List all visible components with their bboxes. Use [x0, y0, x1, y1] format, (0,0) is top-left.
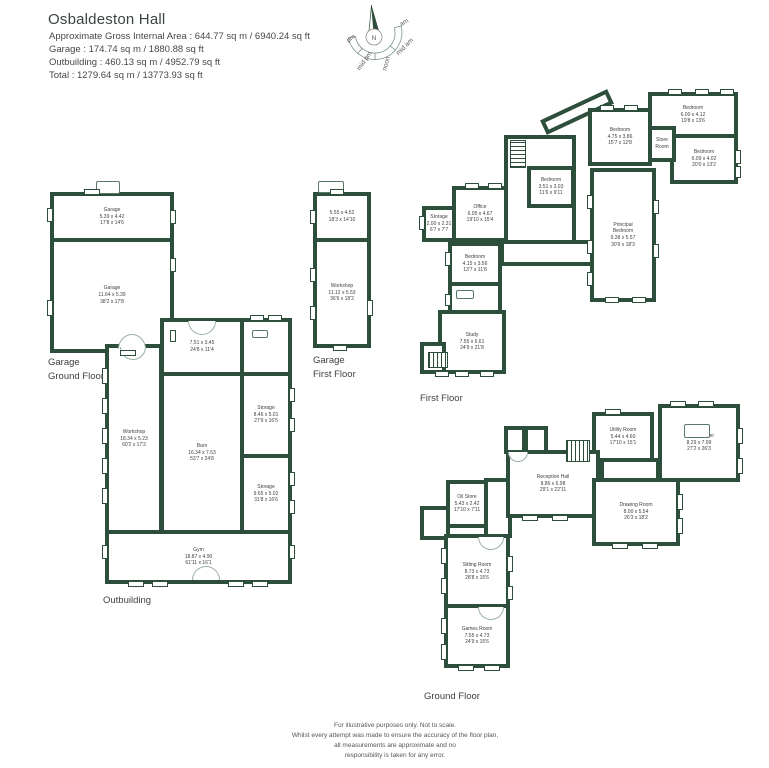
room-dimensions: 27'2 x 26'3	[687, 446, 711, 453]
room-bedroom: Bedroom3.51 x 3.0311'6 x 9'11	[527, 166, 575, 208]
window-mark	[102, 458, 108, 474]
room-dimensions: 4.15 x 3.56	[463, 261, 488, 268]
room-storage: Storage8.46 x 5.0127'9 x 16'5	[240, 372, 292, 458]
room-name: Utility Room	[610, 427, 637, 434]
room-garage: Garage11.64 x 5.3938'2 x 17'8	[50, 238, 174, 353]
window-mark	[552, 515, 568, 521]
window-mark	[668, 89, 682, 95]
window-mark	[441, 618, 447, 634]
room-dimensions: 6'7 x 7'7	[430, 227, 448, 234]
floor-label: Outbuilding	[103, 594, 151, 608]
room-dimensions: 11.64 x 5.39	[98, 292, 125, 299]
room-dimensions: 4.75 x 3.86	[608, 134, 633, 141]
room-name: Bedroom	[541, 177, 561, 184]
room-dimensions: 18.34 x 5.23	[120, 436, 148, 443]
window-mark	[310, 210, 316, 224]
window-mark	[677, 518, 683, 534]
room-dimensions: 36'6 x 18'2	[330, 296, 354, 303]
window-mark	[624, 105, 638, 111]
window-mark	[480, 371, 494, 377]
window-mark	[84, 189, 100, 195]
window-mark	[605, 409, 621, 415]
room-bedroom: Bedroom4.75 x 3.8615'7 x 12'8	[588, 108, 652, 166]
room-dimensions: 27'9 x 16'5	[254, 418, 278, 425]
window-mark	[605, 297, 619, 303]
disclaimer-line: For illustrative purposes only. Not to s…	[185, 721, 605, 731]
room-dimensions: 11.12 x 5.53	[328, 290, 355, 297]
compass-rose: N pmmid pmnoonmid amam	[330, 0, 440, 92]
window-mark	[441, 578, 447, 594]
window-mark	[653, 200, 659, 214]
window-mark	[737, 428, 743, 444]
room-office: Office6.05 x 4.6719'10 x 15'4	[452, 186, 508, 242]
room-name: Study	[466, 332, 479, 339]
area-total-line: Approximate Gross Internal Area : 644.77…	[49, 31, 310, 42]
window-mark	[735, 166, 741, 178]
window-mark	[737, 458, 743, 474]
window-mark	[455, 371, 469, 377]
room-dimensions: 6.05 x 4.67	[468, 211, 493, 218]
room-dimensions: 20'0 x 13'2	[692, 162, 716, 169]
room-name: Storage	[430, 214, 448, 221]
room-dimensions: 26'3 x 18'2	[624, 515, 648, 522]
room-name: Store	[656, 137, 668, 144]
room-dimensions: 18.87 x 4.90	[185, 554, 213, 561]
window-mark	[289, 545, 295, 559]
room-name: Gym	[193, 547, 204, 554]
room-dimensions: 8.86 x 6.98	[541, 481, 566, 488]
floor-label: Garage First Floor	[313, 354, 356, 382]
window-mark	[333, 345, 347, 351]
room-dimensions: 31'8 x 16'6	[254, 497, 278, 504]
room-dimensions: 19'8 x 13'6	[681, 118, 705, 125]
room-dimensions: 60'2 x 17'2	[122, 442, 146, 449]
window-mark	[441, 644, 447, 660]
stairs-icon	[428, 352, 448, 368]
room-storage: Storage9.65 x 5.0231'8 x 16'6	[240, 454, 292, 534]
room-dimensions: 16.34 x 7.53	[188, 450, 216, 457]
disclaimer: For illustrative purposes only. Not to s…	[185, 721, 605, 761]
room-study: Study7.55 x 6.6124'9 x 21'8	[438, 310, 506, 374]
window-mark	[720, 89, 734, 95]
window-mark	[488, 183, 502, 189]
sink-icon	[252, 330, 268, 338]
window-mark	[587, 272, 593, 286]
floor-label: Garage Ground Floor	[48, 356, 104, 384]
room-dimensions: 9.38 x 5.57	[611, 235, 636, 242]
page-title: Osbaldeston Hall	[48, 11, 165, 28]
room-dimensions: 24'9 x 15'6	[465, 639, 489, 646]
room-dimensions: 30'9 x 18'3	[611, 242, 635, 249]
room-dimensions: 5.43 x 2.42	[455, 501, 480, 508]
room-name: Bedroom	[694, 149, 714, 156]
window-mark	[170, 210, 176, 224]
window-mark	[47, 208, 53, 222]
window-mark	[289, 388, 295, 402]
kitchen-island	[684, 424, 710, 438]
room-name: Barn	[197, 443, 208, 450]
room-dimensions: 9.65 x 5.02	[254, 491, 279, 498]
window-mark	[441, 548, 447, 564]
room-name: 5.55 x 4.52	[330, 210, 355, 217]
window-mark	[170, 330, 176, 342]
room-name: Reception Hall	[537, 474, 570, 481]
room-name: Drawing Room	[619, 502, 652, 509]
window-mark	[170, 258, 176, 272]
window-mark	[642, 543, 658, 549]
window-mark	[507, 556, 513, 572]
room-dimensions: 7.55 x 4.73	[465, 633, 490, 640]
window-mark	[445, 294, 451, 306]
window-mark	[289, 472, 295, 486]
disclaimer-line: all measurements are approximate and no	[185, 741, 605, 751]
room-dimensions: 8.00 x 5.54	[624, 509, 649, 516]
window-mark	[120, 350, 136, 356]
area-grand-total-line: Total : 1279.64 sq m / 13773.93 sq ft	[49, 70, 203, 81]
window-mark	[695, 89, 709, 95]
room-dimensions: 8.46 x 5.01	[254, 412, 279, 419]
window-mark	[653, 244, 659, 258]
compass-sun-label: am	[399, 17, 410, 28]
room-dimensions: 13'7 x 11'8	[463, 267, 487, 274]
area-outbuilding-line: Outbuilding : 460.13 sq m / 4952.79 sq f…	[49, 57, 220, 68]
room-name: Sitting Room	[463, 562, 492, 569]
room-name: Storage	[257, 484, 275, 491]
room-garage: Garage5.39 x 4.4217'8 x 14'6	[50, 192, 174, 242]
window-mark	[419, 216, 425, 230]
room-name: Office	[474, 204, 487, 211]
room-dimensions: 18'3 x 14'10	[329, 217, 356, 224]
window-mark	[128, 581, 144, 587]
window-mark	[102, 545, 108, 559]
room-dimensions: Bedroom	[613, 228, 633, 235]
room-kitchen-diner: Kitchen/Diner8.29 x 7.9927'2 x 26'3	[658, 404, 740, 482]
room-name: Storage	[257, 405, 275, 412]
window-mark	[102, 398, 108, 414]
room-dimensions: 17'10 x 7'11	[454, 507, 480, 514]
window-mark	[152, 581, 168, 587]
disclaimer-line: Whilst every attempt was made to ensure …	[185, 731, 605, 741]
room-name: Games Room	[462, 626, 493, 633]
room-dimensions: 38'2 x 17'8	[100, 299, 124, 306]
room-dimensions: 2.00 x 2.31	[427, 221, 452, 228]
window-mark	[445, 252, 451, 266]
window-mark	[250, 315, 264, 321]
room-storage: Storage2.00 x 2.316'7 x 7'7	[422, 206, 456, 242]
stairs-icon	[566, 440, 590, 462]
window-mark	[632, 297, 646, 303]
room-workshop: Workshop18.34 x 5.2360'2 x 17'2	[105, 344, 163, 534]
room-name: Principal	[613, 222, 632, 229]
room-dimensions: 19'10 x 15'4	[467, 217, 494, 224]
floor-label: First Floor	[420, 392, 463, 406]
window-mark	[670, 401, 686, 407]
room-dimensions: 11'6 x 9'11	[539, 190, 562, 197]
area-garage-line: Garage : 174.74 sq m / 1880.88 sq ft	[49, 44, 204, 55]
window-mark	[102, 368, 108, 384]
room-dimensions: 28'8 x 15'6	[465, 575, 489, 582]
window-mark	[507, 586, 513, 600]
room-loft-room: 5.55 x 4.5218'3 x 14'10	[313, 192, 371, 242]
floor-label: Ground Floor	[424, 690, 480, 704]
window-mark	[268, 315, 282, 321]
window-mark	[102, 488, 108, 504]
room-oil-store: Oil Store5.43 x 2.4217'10 x 7'11	[446, 480, 488, 528]
room-dimensions: 5.39 x 4.42	[100, 214, 125, 221]
window-mark	[587, 240, 593, 254]
bathtub-icon	[456, 290, 474, 299]
window-mark	[330, 189, 344, 195]
room-dimensions: 17'8 x 14'6	[100, 220, 124, 227]
window-mark	[228, 581, 244, 587]
room-name: Garage	[104, 207, 121, 214]
window-mark	[289, 418, 295, 432]
window-mark	[310, 306, 316, 320]
window-mark	[252, 581, 268, 587]
room-dimensions: 8.29 x 7.99	[687, 440, 712, 447]
room-dimensions: 6.00 x 4.12	[681, 112, 706, 119]
window-mark	[698, 401, 714, 407]
room-dimensions: 5.44 x 4.60	[611, 434, 636, 441]
room-name: Workshop	[331, 283, 353, 290]
window-mark	[600, 105, 614, 111]
window-mark	[310, 268, 316, 282]
window-mark	[47, 300, 53, 316]
window-mark	[367, 300, 373, 316]
room-dimensions: 3.51 x 3.03	[539, 184, 564, 191]
window-mark	[484, 665, 500, 671]
window-mark	[612, 543, 628, 549]
room-name: Oil Store	[457, 494, 476, 501]
room-name: Garage	[104, 285, 121, 292]
room-dimensions: Room	[655, 144, 668, 151]
window-mark	[465, 183, 479, 189]
window-mark	[735, 150, 741, 164]
room-name: Bedroom	[610, 127, 630, 134]
room-bedroom: Bedroom6.09 x 4.0220'0 x 13'2	[670, 134, 738, 184]
compass-north-label: N	[372, 35, 377, 42]
room-barn: Barn16.34 x 7.5353'7 x 24'8	[160, 372, 244, 534]
room-dimensions: 15'7 x 12'8	[608, 140, 632, 147]
room-dimensions: 24'9 x 21'8	[460, 345, 484, 352]
window-mark	[458, 665, 474, 671]
room-name: Bedroom	[465, 254, 485, 261]
room-dimensions: 17'10 x 15'1	[610, 440, 637, 447]
floor-plan-page: { "colors": { "wall": "#2d4e3b", "text":…	[0, 0, 769, 768]
window-mark	[587, 195, 593, 209]
disclaimer-line: responsibility is taken for any error.	[185, 751, 605, 761]
room-corridor	[500, 240, 596, 266]
room-name: Workshop	[123, 429, 145, 436]
room-principal-bedroom: PrincipalBedroom9.38 x 5.5730'9 x 18'3	[590, 168, 656, 302]
room-name: 7.51 x 3.45	[190, 340, 215, 347]
room-bedroom: Bedroom4.15 x 3.5613'7 x 11'8	[448, 242, 502, 286]
window-mark	[677, 494, 683, 510]
room-dimensions: 6.09 x 4.02	[692, 156, 717, 163]
window-mark	[522, 515, 538, 521]
room-dimensions: 53'7 x 24'8	[190, 456, 214, 463]
room-dimensions: 7.55 x 6.61	[460, 339, 485, 346]
room-name: Bedroom	[683, 105, 703, 112]
room-workshop: Workshop11.12 x 5.5336'6 x 18'2	[313, 238, 371, 348]
room-utility-room: Utility Room5.44 x 4.6017'10 x 15'1	[592, 412, 654, 462]
room-store-room: StoreRoom	[648, 126, 676, 162]
window-mark	[435, 371, 449, 377]
room-dimensions: 24'8 x 11'4	[190, 347, 214, 354]
room-dimensions: 29'1 x 22'11	[540, 487, 566, 494]
room-outbuilding-wc	[240, 318, 292, 376]
room-drawing-room: Drawing Room8.00 x 5.5426'3 x 18'2	[592, 478, 680, 546]
room-dimensions: 8.73 x 4.73	[465, 569, 490, 576]
window-mark	[289, 500, 295, 514]
window-mark	[102, 428, 108, 444]
stairs-icon	[510, 140, 526, 168]
